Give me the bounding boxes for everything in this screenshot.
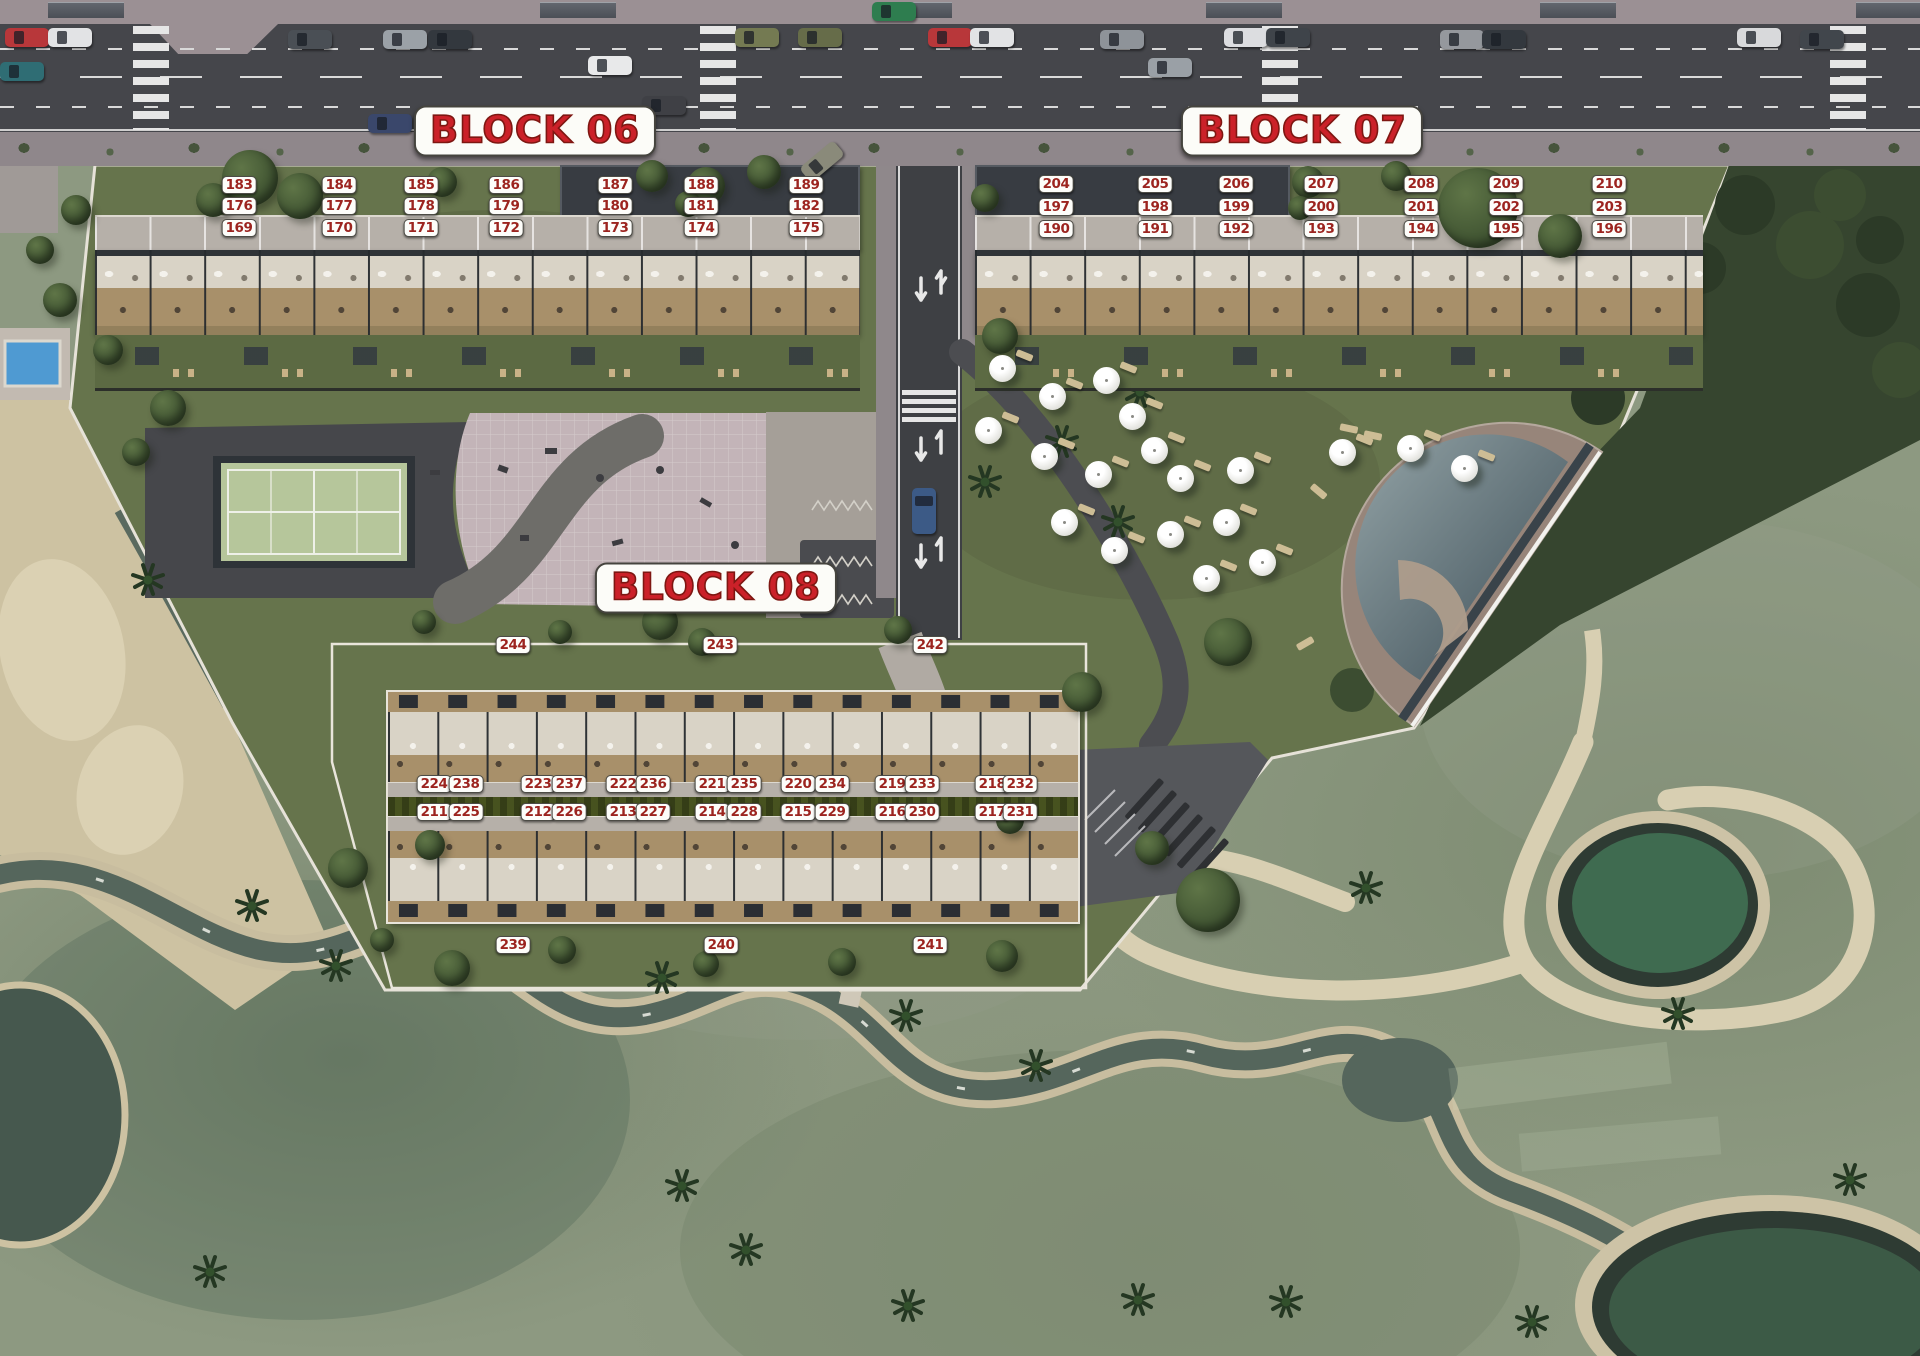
unit-label-225[interactable]: 225	[449, 803, 484, 821]
unit-label-177[interactable]: 177	[322, 197, 357, 215]
umbrella-icon	[1249, 549, 1276, 576]
unit-label-188[interactable]: 188	[684, 176, 719, 194]
unit-label-190[interactable]: 190	[1039, 220, 1074, 238]
unit-label-170[interactable]: 170	[322, 219, 357, 237]
tree-icon	[1062, 672, 1102, 712]
block-08-carports-top	[388, 692, 1078, 712]
tree-icon	[1135, 831, 1169, 865]
unit-label-235[interactable]: 235	[727, 775, 762, 793]
unit-label-214[interactable]: 214	[695, 803, 730, 821]
tree-icon	[982, 318, 1018, 354]
unit-label-204[interactable]: 204	[1039, 175, 1074, 193]
umbrella-icon	[1051, 509, 1078, 536]
tree-icon	[693, 951, 719, 977]
unit-label-198[interactable]: 198	[1138, 198, 1173, 216]
umbrella-icon	[1397, 435, 1424, 462]
rooftop	[540, 2, 616, 18]
block-08-units-bottom	[388, 831, 1078, 901]
unit-label-172[interactable]: 172	[489, 219, 524, 237]
umbrella-icon	[1119, 403, 1146, 430]
unit-label-203[interactable]: 203	[1592, 198, 1627, 216]
unit-label-239[interactable]: 239	[496, 936, 531, 954]
unit-label-184[interactable]: 184	[322, 176, 357, 194]
block-07-gardens	[975, 335, 1703, 391]
unit-label-192[interactable]: 192	[1219, 220, 1254, 238]
central-road	[896, 128, 962, 640]
block-08-carports-bottom	[388, 901, 1078, 922]
car-icon	[970, 28, 1014, 47]
tree-icon	[415, 830, 445, 860]
car-icon	[735, 28, 779, 47]
tree-icon	[548, 620, 572, 644]
unit-label-206[interactable]: 206	[1219, 175, 1254, 193]
car-icon	[0, 62, 44, 81]
unit-label-187[interactable]: 187	[598, 176, 633, 194]
unit-label-201[interactable]: 201	[1404, 198, 1439, 216]
car-icon	[1266, 28, 1310, 47]
umbrella-icon	[1093, 367, 1120, 394]
unit-label-171[interactable]: 171	[404, 219, 439, 237]
rooftop	[1856, 2, 1920, 18]
unit-label-182[interactable]: 182	[789, 197, 824, 215]
unit-label-180[interactable]: 180	[598, 197, 633, 215]
tree-icon	[93, 335, 123, 365]
umbrella-icon	[989, 355, 1016, 382]
unit-label-215[interactable]: 215	[781, 803, 816, 821]
unit-label-238[interactable]: 238	[449, 775, 484, 793]
site-plan-map: BLOCK 0618318418518618718818917617717817…	[0, 0, 1920, 1356]
unit-label-208[interactable]: 208	[1404, 175, 1439, 193]
unit-label-224[interactable]: 224	[417, 775, 452, 793]
umbrella-icon	[1167, 465, 1194, 492]
block-07-title: BLOCK 07	[1181, 106, 1423, 157]
unit-label-169[interactable]: 169	[222, 219, 257, 237]
unit-label-173[interactable]: 173	[598, 219, 633, 237]
tree-icon	[122, 438, 150, 466]
mowed-patch	[1448, 1042, 1671, 1110]
car-icon	[1482, 30, 1526, 49]
tree-icon	[636, 160, 668, 192]
umbrella-icon	[1141, 437, 1168, 464]
tree-icon	[328, 848, 368, 888]
car-icon	[1148, 58, 1192, 77]
unit-label-211[interactable]: 211	[417, 803, 452, 821]
car-icon	[912, 488, 936, 534]
unit-label-197[interactable]: 197	[1039, 198, 1074, 216]
umbrella-icon	[975, 417, 1002, 444]
neighbor-pool	[5, 341, 60, 386]
unit-label-223[interactable]: 223	[521, 775, 556, 793]
unit-label-236[interactable]: 236	[636, 775, 671, 793]
unit-label-179[interactable]: 179	[489, 197, 524, 215]
block-08-title: BLOCK 08	[595, 563, 837, 614]
unit-label-200[interactable]: 200	[1304, 198, 1339, 216]
car-icon	[1100, 30, 1144, 49]
tree-icon	[26, 236, 54, 264]
unit-label-232[interactable]: 232	[1003, 775, 1038, 793]
unit-label-244[interactable]: 244	[496, 636, 531, 654]
unit-label-174[interactable]: 174	[684, 219, 719, 237]
unit-label-178[interactable]: 178	[404, 197, 439, 215]
unit-label-185[interactable]: 185	[404, 176, 439, 194]
tree-icon	[150, 390, 186, 426]
tree-icon	[1538, 214, 1582, 258]
road-edge	[0, 129, 1920, 131]
unit-label-176[interactable]: 176	[222, 197, 257, 215]
north-sidewalk	[0, 0, 1920, 24]
umbrella-icon	[1157, 521, 1184, 548]
umbrella-icon	[1227, 457, 1254, 484]
umbrella-icon	[1031, 443, 1058, 470]
umbrella-icon	[1451, 455, 1478, 482]
car-icon	[368, 114, 412, 133]
south-sidewalk	[0, 132, 1920, 166]
car-icon	[1800, 30, 1844, 49]
car-icon	[928, 28, 972, 47]
tree-icon	[971, 184, 999, 212]
unit-label-229[interactable]: 229	[815, 803, 850, 821]
crosswalk	[133, 26, 169, 130]
car-icon	[48, 28, 92, 47]
unit-label-199[interactable]: 199	[1219, 198, 1254, 216]
umbrella-icon	[1085, 461, 1112, 488]
unit-label-231[interactable]: 231	[1003, 803, 1038, 821]
unit-label-183[interactable]: 183	[222, 176, 257, 194]
unit-label-196[interactable]: 196	[1592, 220, 1627, 238]
block-06-units	[95, 250, 860, 335]
unit-label-189[interactable]: 189	[789, 176, 824, 194]
tree-icon	[747, 155, 781, 189]
tree-icon	[1176, 868, 1240, 932]
tree-icon	[1204, 618, 1252, 666]
unit-label-191[interactable]: 191	[1138, 220, 1173, 238]
unit-label-221[interactable]: 221	[695, 775, 730, 793]
tree-icon	[61, 195, 91, 225]
unit-label-181[interactable]: 181	[684, 197, 719, 215]
block-06-walkway	[95, 215, 860, 254]
unit-label-210[interactable]: 210	[1592, 175, 1627, 193]
block-06-gardens	[95, 335, 860, 391]
rooftop	[48, 2, 124, 18]
tree-icon	[43, 283, 77, 317]
unit-label-234[interactable]: 234	[815, 775, 850, 793]
car-icon	[798, 28, 842, 47]
unit-label-237[interactable]: 237	[552, 775, 587, 793]
pond	[1572, 833, 1748, 973]
rooftop	[1540, 2, 1616, 18]
tree-icon	[434, 950, 470, 986]
car-icon	[872, 2, 916, 21]
tree-icon	[884, 616, 912, 644]
crosswalk	[700, 26, 736, 130]
unit-label-202[interactable]: 202	[1489, 198, 1524, 216]
car-icon	[1440, 30, 1484, 49]
unit-label-209[interactable]: 209	[1489, 175, 1524, 193]
tree-icon	[277, 173, 323, 219]
umbrella-icon	[1213, 509, 1240, 536]
unit-label-240[interactable]: 240	[704, 936, 739, 954]
tree-icon	[412, 610, 436, 634]
unit-label-175[interactable]: 175	[789, 219, 824, 237]
car-icon	[288, 30, 332, 49]
car-icon	[1737, 28, 1781, 47]
umbrella-icon	[1329, 439, 1356, 466]
mowed-patch	[1519, 1116, 1722, 1171]
block-06-title: BLOCK 06	[414, 106, 656, 157]
unit-label-243[interactable]: 243	[703, 636, 738, 654]
unit-label-186[interactable]: 186	[489, 176, 524, 194]
sidewalk	[876, 128, 896, 598]
car-icon	[1224, 28, 1268, 47]
lane-marking	[0, 48, 1920, 50]
tree-icon	[548, 936, 576, 964]
umbrella-icon	[1101, 537, 1128, 564]
unit-label-207[interactable]: 207	[1304, 175, 1339, 193]
unit-label-241[interactable]: 241	[913, 936, 948, 954]
car-icon	[428, 30, 472, 49]
unit-label-226[interactable]: 226	[552, 803, 587, 821]
car-icon	[588, 56, 632, 75]
unit-label-212[interactable]: 212	[521, 803, 556, 821]
stream-pool	[1342, 1038, 1458, 1122]
block-08-units-top	[388, 712, 1078, 782]
unit-label-233[interactable]: 233	[905, 775, 940, 793]
car-icon	[5, 28, 49, 47]
lane-marking-center	[0, 76, 1920, 78]
unit-label-194[interactable]: 194	[1404, 220, 1439, 238]
lane-marking	[0, 106, 1920, 108]
tree-icon	[986, 940, 1018, 972]
unit-label-220[interactable]: 220	[781, 775, 816, 793]
tree-icon	[370, 928, 394, 952]
unit-label-227[interactable]: 227	[636, 803, 671, 821]
unit-label-205[interactable]: 205	[1138, 175, 1173, 193]
unit-label-230[interactable]: 230	[905, 803, 940, 821]
unit-label-228[interactable]: 228	[727, 803, 762, 821]
umbrella-icon	[1193, 565, 1220, 592]
block-07-units	[975, 250, 1703, 335]
unit-label-193[interactable]: 193	[1304, 220, 1339, 238]
rooftop	[1206, 2, 1282, 18]
umbrella-icon	[1039, 383, 1066, 410]
unit-label-242[interactable]: 242	[913, 636, 948, 654]
tree-icon	[828, 948, 856, 976]
car-icon	[383, 30, 427, 49]
unit-label-195[interactable]: 195	[1489, 220, 1524, 238]
